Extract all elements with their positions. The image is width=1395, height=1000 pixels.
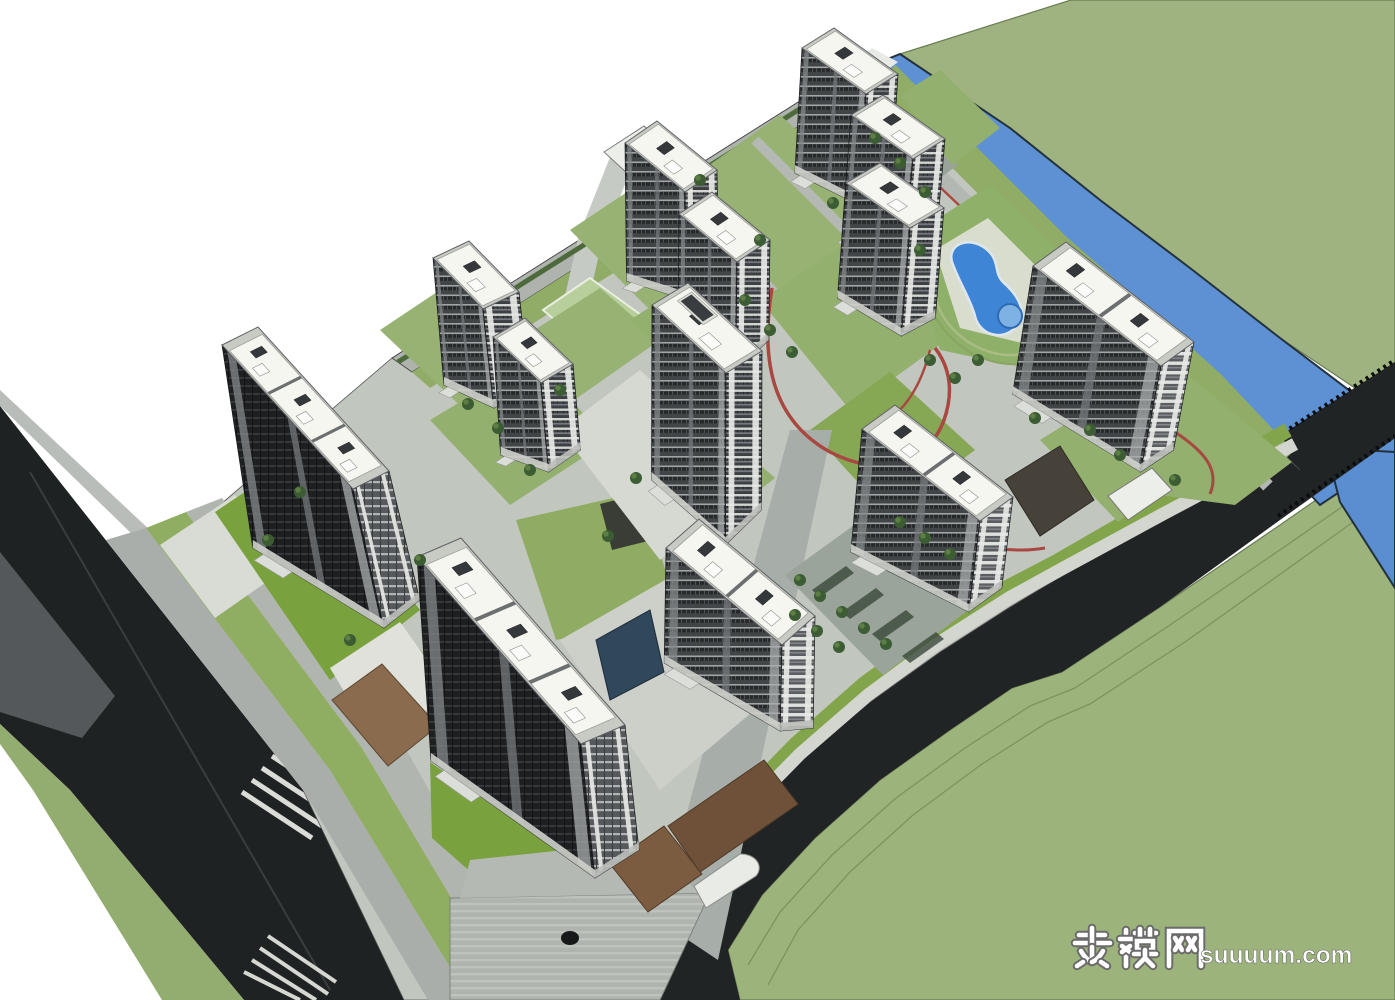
- svg-text:suuuum.com: suuuum.com: [1200, 942, 1352, 969]
